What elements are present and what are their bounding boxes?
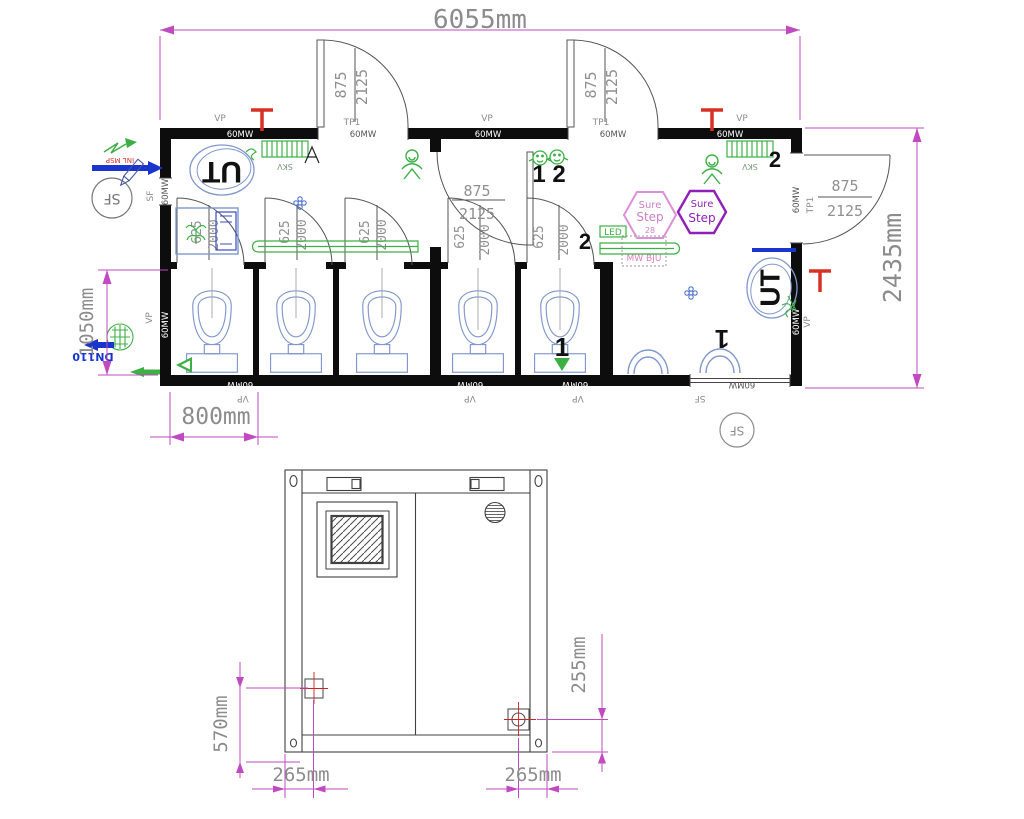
sf-circle-bottom: SF	[720, 413, 754, 447]
dim-left-label: 265mm	[272, 764, 329, 786]
svg-text:60MW: 60MW	[456, 379, 483, 389]
svg-text:VP: VP	[464, 393, 476, 403]
svg-text:60MW: 60MW	[226, 379, 253, 389]
roof-vent-detail	[471, 480, 479, 489]
svg-text:SF: SF	[695, 393, 706, 403]
svg-text:TP1: TP1	[806, 197, 816, 215]
dim-height-label: 255mm	[568, 636, 590, 693]
svg-text:2000: 2000	[207, 219, 222, 250]
svg-text:VP: VP	[237, 393, 249, 403]
stall-door-labels: 625 2000 625 2000 625 2000 625 2000 625 …	[190, 219, 572, 255]
led-label: LED	[604, 228, 622, 238]
post-hole	[535, 476, 542, 487]
post-hole	[536, 739, 542, 747]
svg-text:VP: VP	[736, 114, 748, 124]
stall-center-lines	[212, 268, 560, 330]
dim-front-label: 1050mm	[76, 288, 98, 357]
svg-text:Sure: Sure	[691, 199, 714, 210]
svg-text:Step: Step	[636, 210, 663, 224]
valve-icon	[685, 287, 697, 299]
dim-height-label: 2435mm	[878, 213, 907, 303]
svg-text:VP: VP	[145, 312, 155, 324]
dim-right-label: 265mm	[504, 764, 561, 786]
svg-text:60MW: 60MW	[717, 130, 744, 140]
sensor-label: MW BJU	[627, 254, 662, 264]
hydrant-icon	[251, 110, 273, 131]
svg-text:2000: 2000	[557, 224, 572, 255]
person-icon	[402, 150, 422, 179]
svg-text:TP1: TP1	[592, 118, 610, 128]
sf-circle-left: SF	[92, 178, 132, 218]
toilets	[187, 291, 586, 372]
count-label-2: 2	[579, 229, 591, 254]
post-hole	[290, 476, 297, 487]
zigzag-arrow	[104, 143, 126, 153]
ut-symbol-right: UT	[747, 258, 797, 318]
svg-text:SF: SF	[730, 424, 745, 438]
post-hole	[291, 739, 297, 747]
roof-vent-detail	[352, 480, 360, 489]
sink-bowl	[628, 350, 668, 374]
hydrant-icon	[701, 110, 723, 131]
door-dimension-labels: 875 2125 875 2125 875 2125 875 2125	[332, 69, 863, 223]
person-icon	[702, 155, 722, 184]
sure-step-badge-2: Sure Step	[678, 191, 726, 233]
svg-text:Step: Step	[688, 211, 715, 225]
outlet-crosshair	[504, 702, 536, 736]
dim-stall-label: 800mm	[181, 404, 250, 430]
heater-icon	[727, 141, 773, 157]
svg-text:60MW: 60MW	[792, 186, 802, 213]
svg-text:60MW: 60MW	[227, 130, 254, 140]
zigzag-arrowhead	[125, 138, 137, 148]
ut-symbol-left: UT	[190, 145, 256, 195]
plan-view: 875 2125 875 2125 875 2125 875 2125 625 …	[72, 5, 924, 447]
svg-text:VP: VP	[572, 393, 584, 403]
svg-text:SF: SF	[104, 190, 121, 206]
svg-text:625: 625	[358, 220, 373, 243]
count-label-2: 2	[769, 147, 781, 172]
svg-text:2125: 2125	[827, 202, 863, 220]
svg-text:2000: 2000	[478, 224, 493, 255]
elevation-view: 570mm 265mm 265mm 255mm	[210, 470, 608, 798]
svg-text:VP: VP	[481, 114, 493, 124]
round-vent	[485, 503, 505, 523]
stand-symbol	[305, 147, 319, 163]
svg-text:625: 625	[453, 225, 468, 248]
svg-text:60MW: 60MW	[792, 308, 802, 335]
svg-text:60MW: 60MW	[728, 379, 755, 389]
floor-plan-drawing: 875 2125 875 2125 875 2125 875 2125 625 …	[0, 0, 1024, 819]
count-label-12: 1 2	[532, 161, 565, 188]
dim-width-label: 6055mm	[433, 5, 527, 35]
svg-text:2125: 2125	[353, 69, 371, 105]
svg-text:VP: VP	[803, 316, 813, 328]
heater-labels: SKV SKV	[277, 162, 758, 171]
count-label-1: 1	[555, 332, 569, 362]
svg-text:2125: 2125	[459, 205, 495, 223]
pipe-label: INL MSP	[106, 156, 134, 164]
svg-text:60MW: 60MW	[161, 311, 171, 338]
svg-text:UT: UT	[202, 155, 242, 188]
svg-text:875: 875	[463, 182, 490, 200]
sure-step-badge-1: Sure Step 28	[624, 192, 676, 238]
dim-side-label: 570mm	[210, 695, 232, 752]
svg-text:60MW: 60MW	[350, 130, 377, 140]
hydrant-icon	[809, 271, 831, 292]
svg-text:60MW: 60MW	[161, 178, 171, 205]
window-glass	[332, 516, 383, 563]
svg-text:UT: UT	[754, 269, 785, 306]
svg-text:28: 28	[645, 226, 655, 235]
count-label-1: 1	[715, 324, 729, 354]
svg-text:TP1: TP1	[343, 118, 361, 128]
cad-drawing-canvas: 875 2125 875 2125 875 2125 875 2125 625 …	[0, 0, 1024, 819]
svg-text:SF: SF	[146, 191, 156, 202]
svg-text:60MW: 60MW	[475, 130, 502, 140]
svg-text:625: 625	[190, 220, 205, 243]
svg-text:2125: 2125	[603, 69, 621, 105]
svg-text:625: 625	[278, 220, 293, 243]
svg-text:VP: VP	[214, 114, 226, 124]
svg-text:625: 625	[532, 225, 547, 248]
svg-text:875: 875	[332, 71, 350, 98]
svg-text:SKV: SKV	[742, 162, 758, 171]
heater-icon	[262, 141, 308, 157]
flush-marker	[554, 358, 570, 371]
svg-text:875: 875	[582, 71, 600, 98]
svg-text:60MW: 60MW	[561, 379, 588, 389]
svg-text:60MW: 60MW	[600, 130, 627, 140]
svg-text:875: 875	[831, 177, 858, 195]
svg-text:SKV: SKV	[277, 162, 293, 171]
